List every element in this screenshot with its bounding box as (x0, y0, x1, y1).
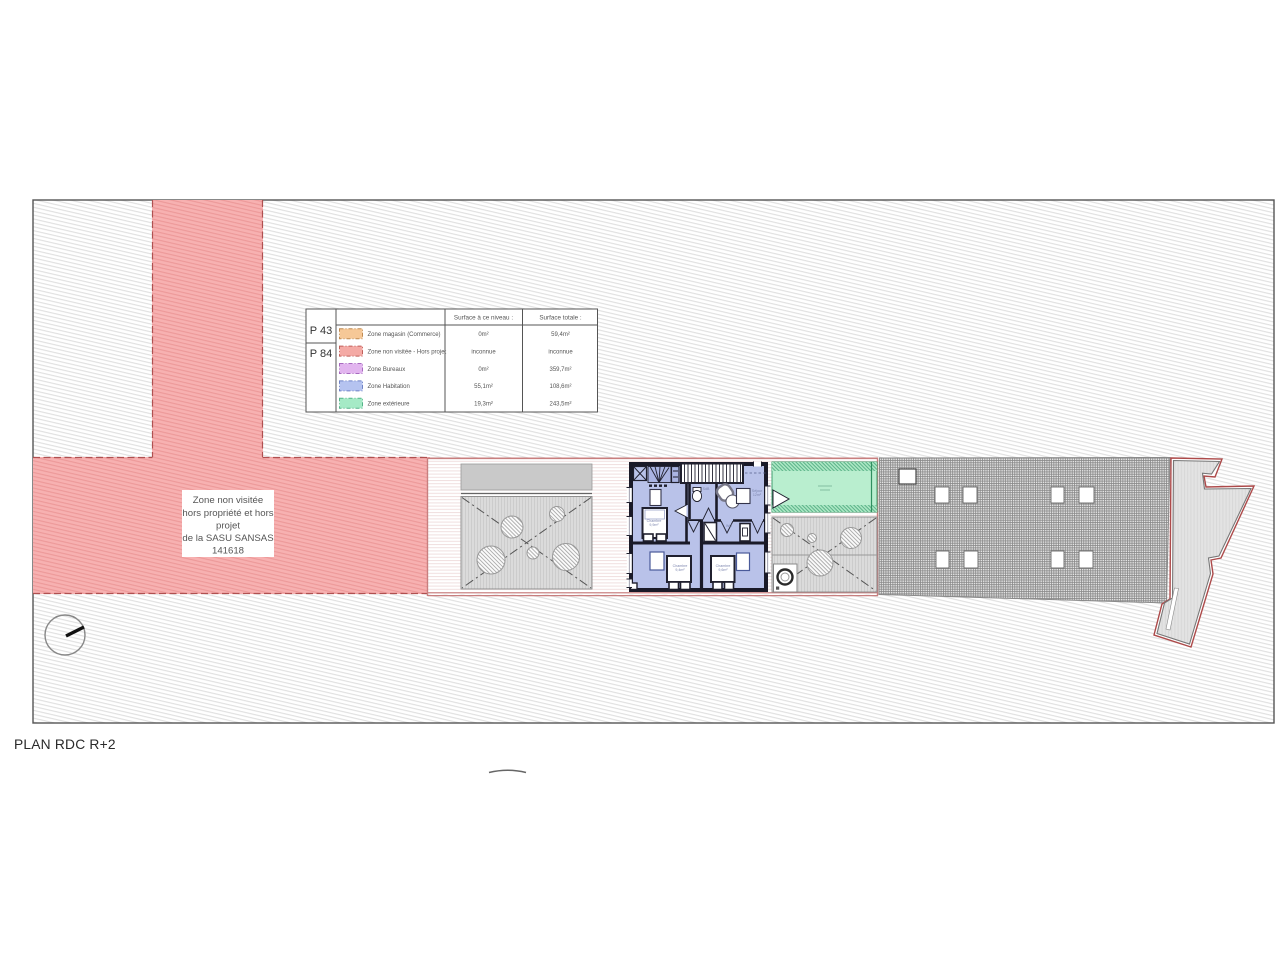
svg-text:12m²: 12m² (753, 493, 762, 497)
svg-text:243,5m²: 243,5m² (549, 402, 571, 408)
svg-text:359,7m²: 359,7m² (549, 367, 571, 373)
svg-text:9,6m²: 9,6m² (718, 568, 728, 572)
svg-text:Zone non visitée: Zone non visitée (193, 495, 263, 506)
svg-text:55,1m²: 55,1m² (474, 384, 493, 390)
svg-text:inconnue: inconnue (471, 349, 496, 355)
svg-text:de la SASU SANSAS: de la SASU SANSAS (182, 533, 273, 544)
svg-text:inconnue: inconnue (548, 349, 573, 355)
svg-text:WC: WC (726, 524, 732, 528)
svg-text:Zone Bureaux: Zone Bureaux (368, 367, 406, 373)
svg-text:SdB: SdB (703, 487, 710, 491)
svg-text:108,6m²: 108,6m² (549, 384, 571, 390)
svg-text:19,3m²: 19,3m² (474, 402, 493, 408)
svg-text:P 84: P 84 (310, 348, 332, 360)
svg-text:9,4m²: 9,4m² (675, 568, 685, 572)
svg-text:Zone magasin (Commerce): Zone magasin (Commerce) (368, 332, 441, 338)
svg-text:P 43: P 43 (310, 325, 332, 337)
svg-text:hors propriété et hors: hors propriété et hors (182, 508, 273, 519)
svg-text:Surface totale :: Surface totale : (539, 315, 582, 322)
svg-text:0m²: 0m² (478, 332, 488, 338)
svg-text:Zone Habitation: Zone Habitation (368, 384, 410, 390)
svg-text:141618: 141618 (212, 546, 244, 557)
svg-text:0m²: 0m² (478, 367, 488, 373)
svg-text:Zone extérieure: Zone extérieure (368, 402, 411, 408)
svg-text:Zone non visitée - Hors projet: Zone non visitée - Hors projet (368, 349, 447, 355)
svg-text:projet: projet (216, 521, 240, 532)
svg-text:9,9m²: 9,9m² (649, 523, 659, 527)
svg-text:Surface à ce niveau :: Surface à ce niveau : (454, 315, 513, 322)
svg-text:59,4m²: 59,4m² (551, 332, 570, 338)
svg-text:PLAN RDC R+2: PLAN RDC R+2 (14, 737, 116, 752)
